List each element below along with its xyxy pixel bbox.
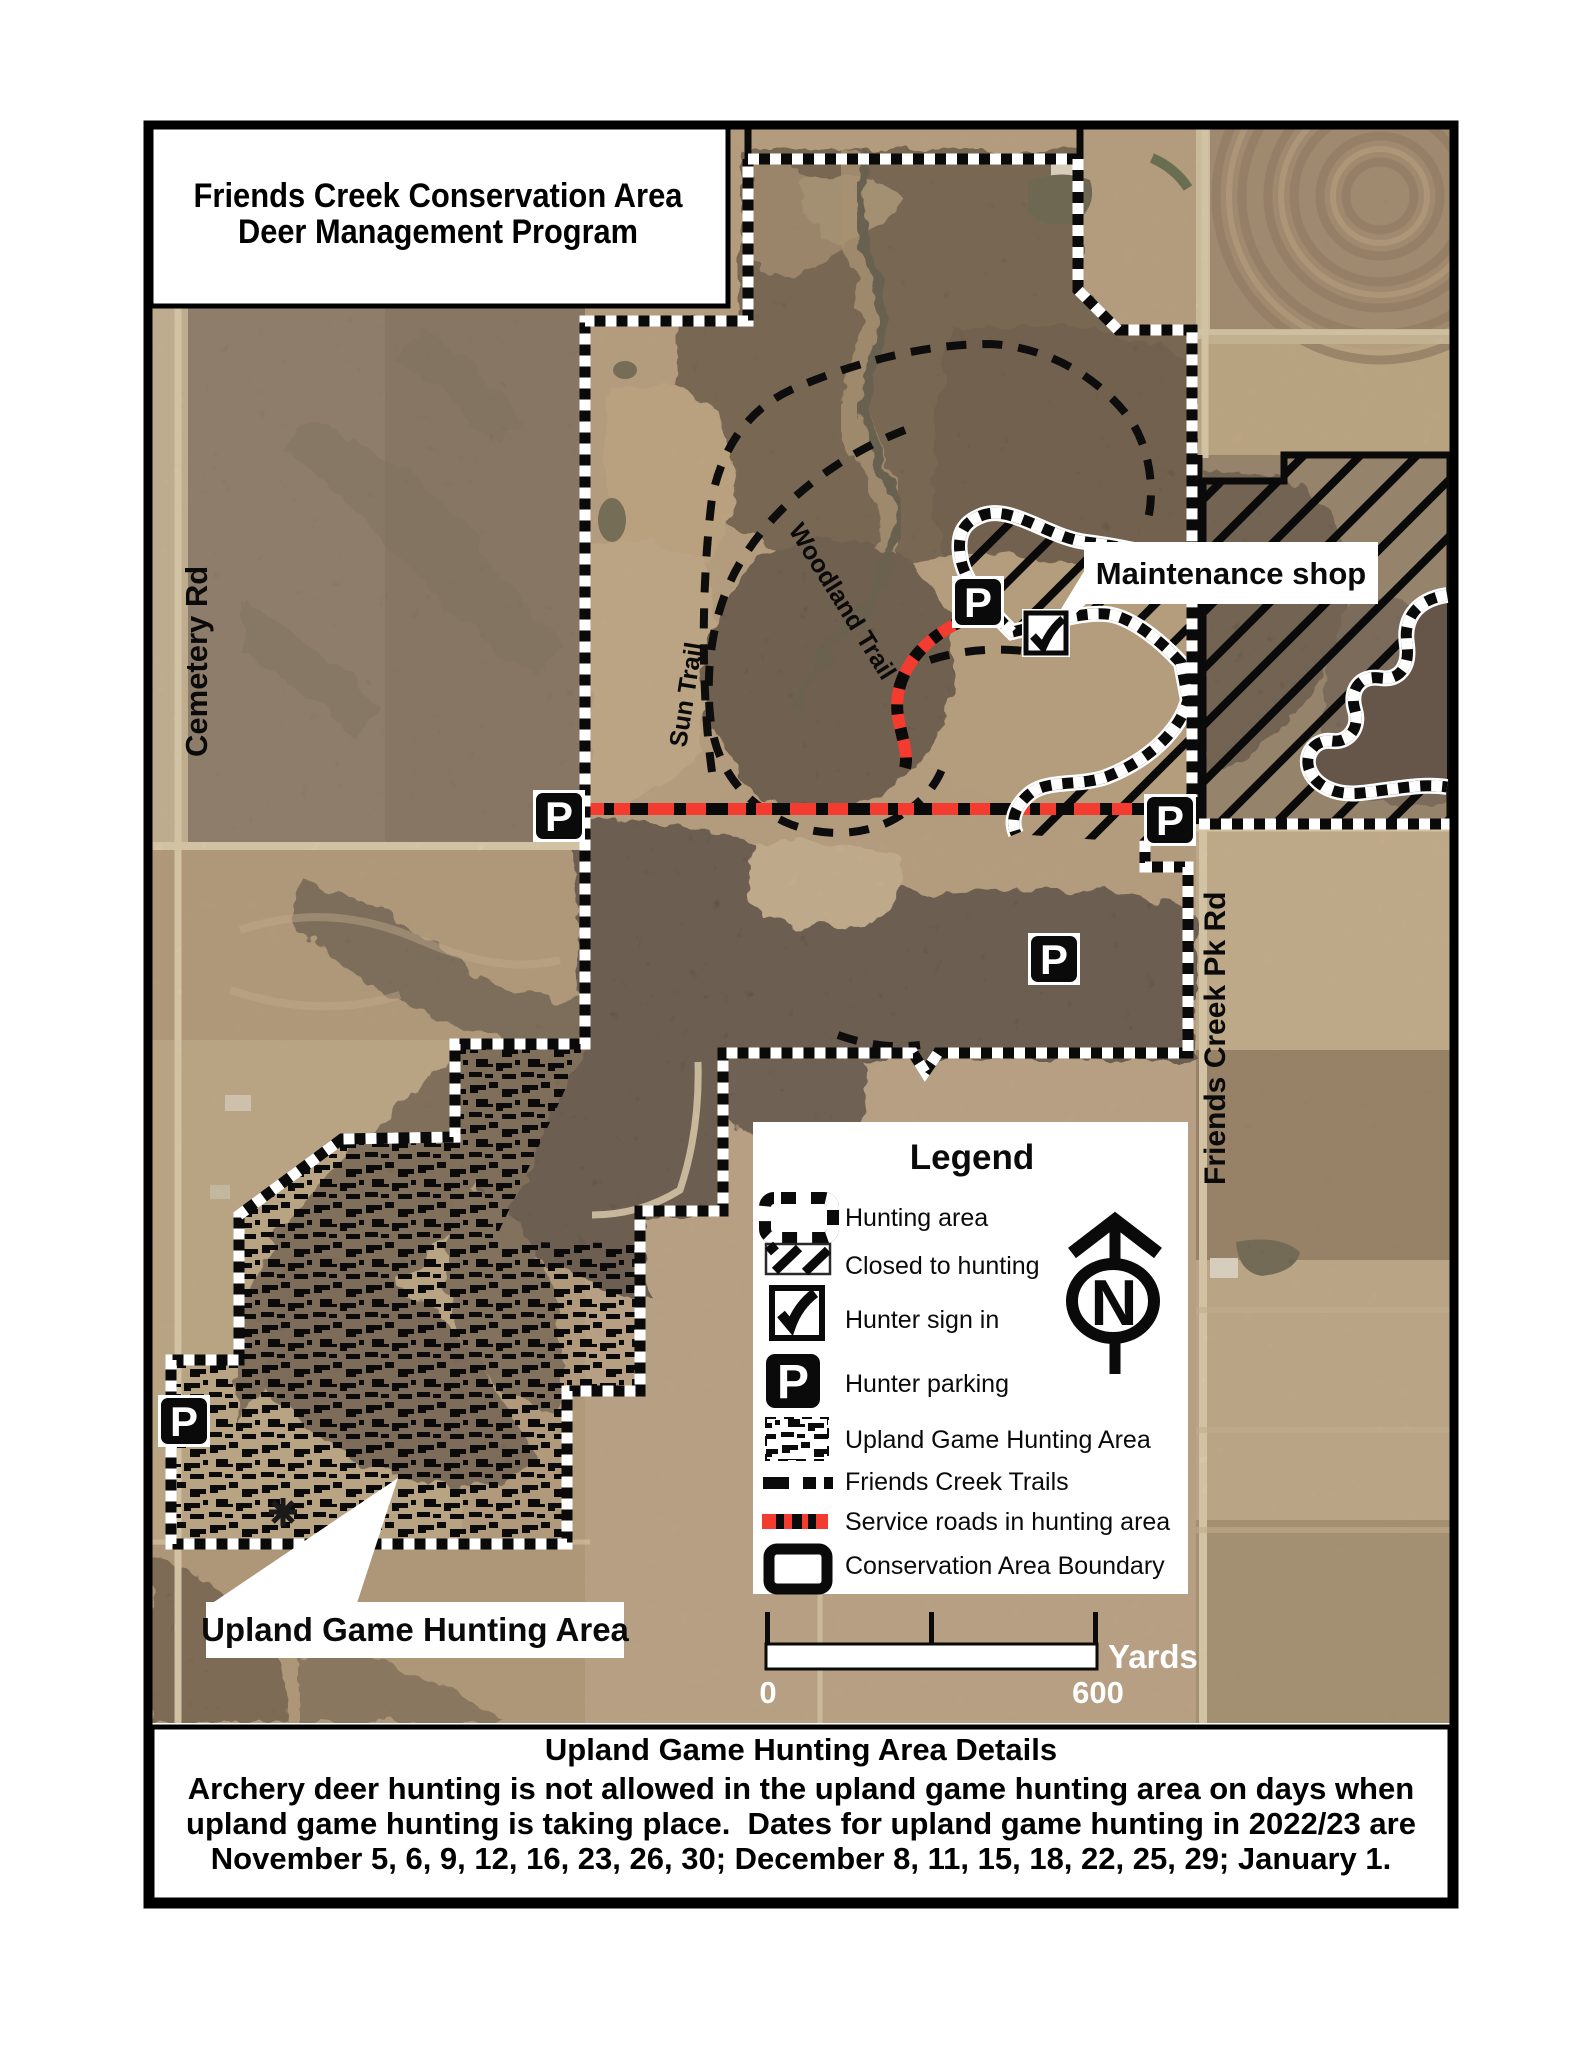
svg-text:Closed to hunting: Closed to hunting [845,1252,1040,1280]
svg-text:Upland Game Hunting Area Detai: Upland Game Hunting Area Details [545,1732,1057,1767]
svg-text:P: P [1040,936,1068,983]
svg-text:Hunter parking: Hunter parking [845,1370,1009,1398]
svg-text:P: P [777,1356,809,1409]
svg-text:Upland Game Hunting Area: Upland Game Hunting Area [201,1611,629,1648]
svg-text:Service roads in hunting area: Service roads in hunting area [845,1508,1170,1536]
svg-text:Friends Creek Pk Rd: Friends Creek Pk Rd [1199,892,1232,1185]
svg-text:0: 0 [759,1675,776,1710]
svg-text:Archery deer hunting is not al: Archery deer hunting is not allowed in t… [188,1771,1414,1806]
svg-text:Friends Creek Conservation Are: Friends Creek Conservation Area [194,177,684,215]
svg-text:P: P [545,793,573,840]
svg-text:Hunter sign in: Hunter sign in [845,1306,999,1334]
svg-text:Conservation Area Boundary: Conservation Area Boundary [845,1552,1165,1580]
svg-text:P: P [170,1398,198,1445]
svg-text:Friends Creek Trails: Friends Creek Trails [845,1468,1069,1496]
svg-text:Upland Game Hunting Area: Upland Game Hunting Area [845,1426,1151,1454]
svg-text:Legend: Legend [910,1138,1034,1177]
svg-text:Cemetery Rd: Cemetery Rd [179,566,214,757]
svg-text:P: P [964,579,992,626]
svg-text:N: N [1091,1266,1138,1339]
svg-text:November 5, 6, 9, 12, 16, 23,: November 5, 6, 9, 12, 16, 23, 26, 30; De… [211,1841,1391,1876]
svg-text:P: P [1156,797,1184,844]
svg-text:upland game hunting is taking: upland game hunting is taking place. Dat… [186,1806,1416,1841]
svg-text:Hunting area: Hunting area [845,1204,988,1232]
svg-text:Maintenance shop: Maintenance shop [1096,556,1366,591]
svg-text:Yards: Yards [1108,1638,1198,1675]
svg-text:600: 600 [1072,1675,1124,1710]
svg-text:Deer Management Program: Deer Management Program [238,213,638,251]
